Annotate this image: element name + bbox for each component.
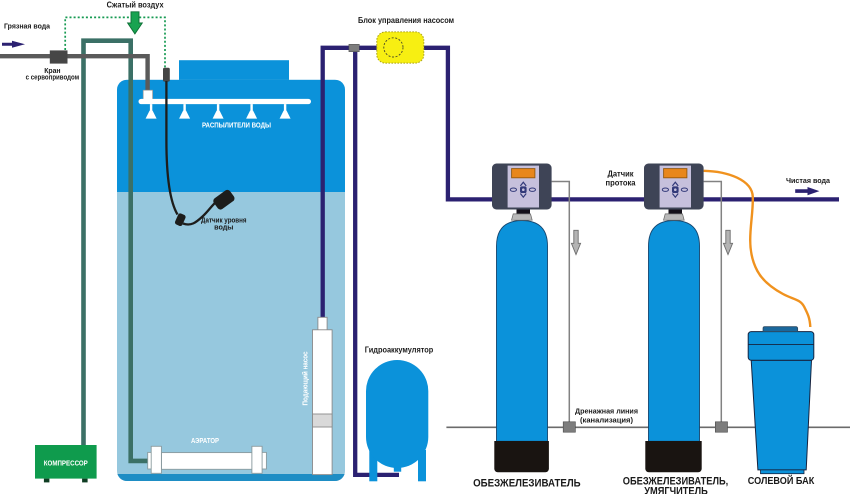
svg-text:с сервоприводом: с сервоприводом: [26, 74, 80, 81]
svg-text:воды: воды: [214, 223, 233, 232]
svg-text:КОМПРЕССОР: КОМПРЕССОР: [44, 461, 88, 468]
svg-text:Подающий насос: Подающий насос: [302, 351, 310, 405]
svg-text:Грязная вода: Грязная вода: [4, 21, 51, 30]
svg-text:УМЯГЧИТЕЛЬ: УМЯГЧИТЕЛЬ: [644, 485, 708, 494]
svg-text:ОБЕЗЖЕЛЕЗИВАТЕЛЬ: ОБЕЗЖЕЛЕЗИВАТЕЛЬ: [473, 477, 581, 489]
svg-text:РАСПЫЛИТЕЛИ ВОДЫ: РАСПЫЛИТЕЛИ ВОДЫ: [202, 122, 271, 129]
svg-text:Датчик: Датчик: [608, 169, 634, 178]
svg-text:Дренажная линия: Дренажная линия: [575, 407, 638, 416]
svg-text:Сжатый воздух: Сжатый воздух: [107, 0, 165, 9]
svg-text:Блок управления насосом: Блок управления насосом: [358, 15, 454, 25]
svg-text:СОЛЕВОЙ БАК: СОЛЕВОЙ БАК: [748, 474, 815, 487]
svg-text:(канализация): (канализация): [580, 416, 634, 425]
svg-text:Чистая вода: Чистая вода: [786, 176, 831, 185]
svg-text:АЭРАТОР: АЭРАТОР: [191, 438, 219, 445]
svg-text:протока: протока: [606, 179, 637, 188]
svg-text:Гидроаккумулятор: Гидроаккумулятор: [365, 346, 434, 355]
